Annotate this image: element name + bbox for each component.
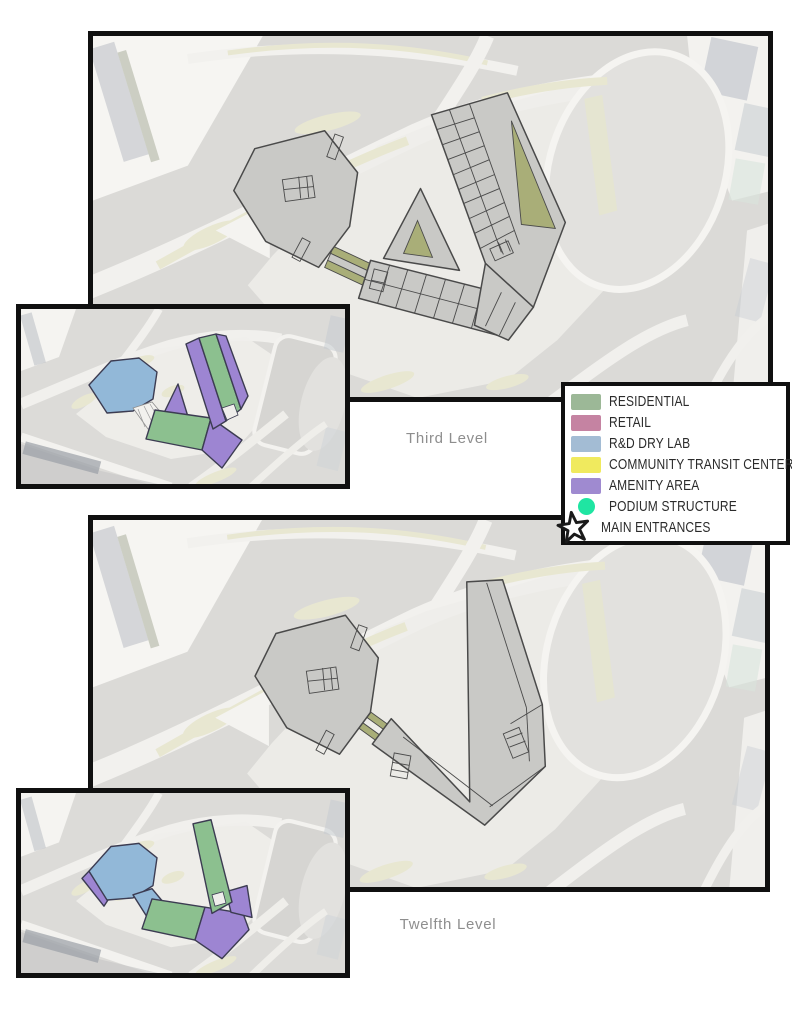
notch: [212, 892, 226, 906]
legend-row-residential: RESIDENTIAL: [571, 391, 786, 412]
legend-label: RETAIL: [609, 414, 651, 431]
page: RESIDENTIAL RETAIL R&D DRY LAB COMMUNITY…: [0, 0, 792, 1024]
legend-row-community-transit-center: COMMUNITY TRANSIT CENTER: [571, 454, 786, 475]
residential-swatch-icon: [571, 394, 601, 410]
legend-label: AMENITY AREA: [609, 477, 699, 494]
community-transit-swatch-icon: [571, 457, 601, 473]
legend: RESIDENTIAL RETAIL R&D DRY LAB COMMUNITY…: [561, 382, 790, 545]
third-level-label: Third Level: [352, 430, 542, 447]
third-level-inset-panel: [16, 304, 350, 489]
legend-label: RESIDENTIAL: [609, 393, 689, 410]
twelfth-level-label: Twelfth Level: [348, 916, 548, 933]
legend-row-amenity-area: AMENITY AREA: [571, 475, 786, 496]
amenity-swatch-icon: [571, 478, 601, 494]
legend-label: MAIN ENTRANCES: [601, 519, 711, 536]
retail-swatch-icon: [571, 415, 601, 431]
twelfth-level-zone-plan: [21, 793, 345, 973]
legend-label: PODIUM STRUCTURE: [609, 498, 737, 515]
legend-label: R&D DRY LAB: [609, 435, 690, 452]
legend-row-rd-dry-lab: R&D DRY LAB: [571, 433, 786, 454]
star-icon: [555, 510, 592, 546]
aerial-background: [21, 309, 345, 484]
twelfth-level-inset-panel: [16, 788, 350, 978]
legend-row-main-entrances: MAIN ENTRANCES: [571, 517, 786, 538]
third-level-zone-plan: [21, 309, 345, 484]
legend-label: COMMUNITY TRANSIT CENTER: [609, 456, 792, 473]
rd-dry-lab-swatch-icon: [571, 436, 601, 452]
aerial-background: [21, 793, 345, 973]
legend-row-podium-structure: PODIUM STRUCTURE: [571, 496, 786, 517]
legend-row-retail: RETAIL: [571, 412, 786, 433]
